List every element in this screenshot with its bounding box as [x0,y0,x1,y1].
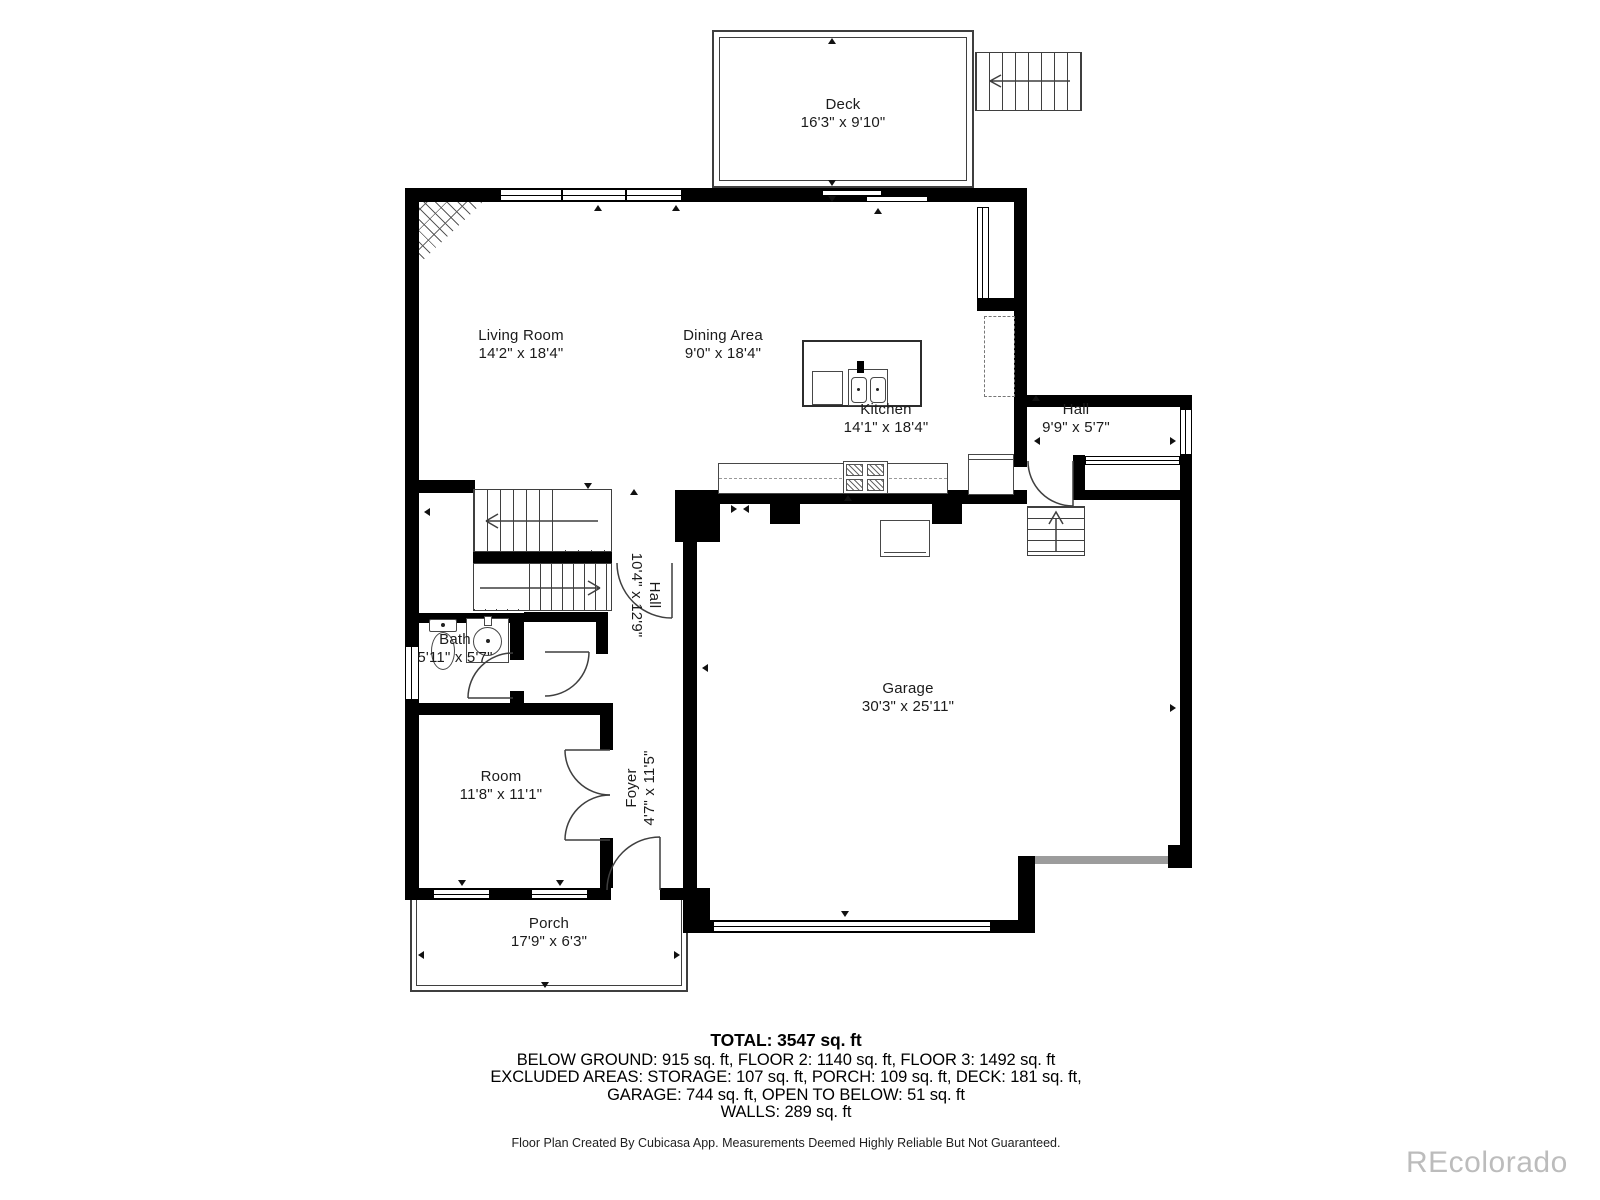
wall [473,551,612,563]
wall [1018,856,1035,933]
wall [405,480,475,493]
garage-side-door [1035,856,1168,866]
counter-dash-line [719,478,947,479]
tick-icon [702,664,708,672]
window-line [411,647,412,699]
window-line [532,894,587,895]
tick-icon [1170,704,1176,712]
summary-line: WALLS: 289 sq. ft [186,1104,1386,1122]
window-line [434,894,489,895]
double-door-arc [565,795,610,840]
window-line [501,195,681,196]
window [500,189,682,201]
tick-icon [731,505,737,513]
wall [683,504,697,933]
room-name: Hall [1042,401,1110,419]
room-dims: 10'4" x 12'9" [627,553,645,638]
wall [1168,845,1192,868]
summary-line: EXCLUDED AREAS: STORAGE: 107 sq. ft, POR… [186,1069,1386,1087]
room-name: Dining Area [683,327,763,345]
watermark: REcolorado [1406,1146,1568,1180]
room-dims: 11'8" x 11'1" [460,786,543,804]
wall [405,188,1027,202]
window [433,889,490,899]
garage-door-line [714,926,990,927]
room-dims: 4'7" x 11'5" [641,750,659,825]
room-label-dining-area: Dining Area 9'0" x 18'4" [683,327,763,363]
room-label-kitchen: Kitchen 14'1" x 18'4" [844,401,929,437]
double-door-arc [565,750,610,795]
furnace-line [884,552,926,553]
room-name: Kitchen [844,401,929,419]
kitchen-counter [718,463,948,494]
tick-icon [841,911,849,917]
faucet-icon [857,361,864,373]
stair-landing [554,490,611,550]
room-name: Bath [417,631,492,649]
wall [405,703,613,715]
window-line [982,208,983,298]
room-label-bath: Bath 5'11" x 5'7" [417,631,492,667]
window-line [1185,410,1186,454]
wall [683,888,710,932]
room-name: Hall [645,553,663,638]
room-label-garage: Garage 30'3" x 25'11" [862,680,954,716]
window-divider [625,190,627,200]
wall [405,202,419,900]
window [531,889,588,899]
tick-icon [630,489,638,495]
tick-icon [594,205,602,211]
room-name: Room [460,768,543,786]
tick-icon [743,505,749,513]
room-dims: 14'1" x 18'4" [844,419,929,437]
summary-line: GARAGE: 744 sq. ft, OPEN TO BELOW: 51 sq… [186,1087,1386,1105]
window [1085,456,1180,465]
door-arc [545,652,589,696]
room-dims: 14'2" x 18'4" [478,345,564,363]
window [977,207,989,299]
window [1180,409,1192,455]
tick-icon [874,208,882,214]
door-arc [607,837,660,890]
room-label-deck: Deck 16'3" x 9'10" [801,96,886,132]
room-label-room: Room 11'8" x 11'1" [460,768,543,804]
room-dims: 5'11" x 5'7" [417,649,492,667]
island-cabinet [812,371,843,405]
pantry-dashed [984,316,1015,397]
room-label-hall-upper: Hall 9'9" x 5'7" [1042,401,1110,437]
tick-icon [1170,437,1176,445]
room-label-hall-mid: Hall 10'4" x 12'9" [627,553,663,638]
room-dims: 9'9" x 5'7" [1042,419,1110,437]
deck-staircase [975,52,1082,111]
sink-drain [876,388,879,391]
door-opening [611,888,660,900]
room-name: Living Room [478,327,564,345]
total-area: TOTAL: 3547 sq. ft [186,1032,1386,1050]
room-name: Deck [801,96,886,114]
wall [675,490,720,542]
hatched-corner [419,202,483,264]
sink-drain [857,388,860,391]
tick-icon [458,880,466,886]
sliding-door-panel [866,196,928,202]
garage-door [713,921,991,932]
faucet-icon [484,616,492,626]
tick-icon [424,508,430,516]
burner-icon [867,464,884,476]
window-divider [561,190,563,200]
summary-line: BELOW GROUND: 915 sq. ft, FLOOR 2: 1140 … [186,1052,1386,1070]
furnace-fixture [880,520,930,557]
wall [596,612,608,654]
wall [1014,202,1027,467]
stair-landing [474,564,526,609]
wall [600,715,613,750]
tick-icon [1034,437,1040,445]
burner-icon [846,464,863,476]
wall [1073,490,1180,500]
wall [932,504,962,524]
tick-icon [556,880,564,886]
room-dims: 17'9" x 6'3" [511,933,587,951]
disclaimer: Floor Plan Created By Cubicasa App. Meas… [186,1136,1386,1150]
room-label-living-room: Living Room 14'2" x 18'4" [478,327,564,363]
refrigerator-fixture [968,454,1014,495]
wall [1180,407,1192,845]
room-label-porch: Porch 17'9" x 6'3" [511,915,587,951]
stove-fixture [843,461,888,494]
room-dims: 9'0" x 18'4" [683,345,763,363]
room-name: Porch [511,915,587,933]
room-label-foyer: Foyer 4'7" x 11'5" [623,750,659,825]
room-name: Foyer [623,750,641,825]
floor-plan: Deck 16'3" x 9'10" Living Room 14'2" x 1… [0,0,1600,1200]
door-arc [1028,461,1073,506]
staircase-basement [1027,506,1085,556]
room-dims: 30'3" x 25'11" [862,698,954,716]
refrigerator-line [969,459,1013,460]
wall [510,613,524,660]
burner-icon [867,479,884,491]
burner-icon [846,479,863,491]
wall [977,298,1014,311]
toilet-button [441,623,445,627]
area-summary: TOTAL: 3547 sq. ft BELOW GROUND: 915 sq.… [186,1032,1386,1122]
room-name: Garage [862,680,954,698]
wall [770,504,800,524]
window-line [1086,460,1179,461]
tick-icon [672,205,680,211]
room-dims: 16'3" x 9'10" [801,114,886,132]
